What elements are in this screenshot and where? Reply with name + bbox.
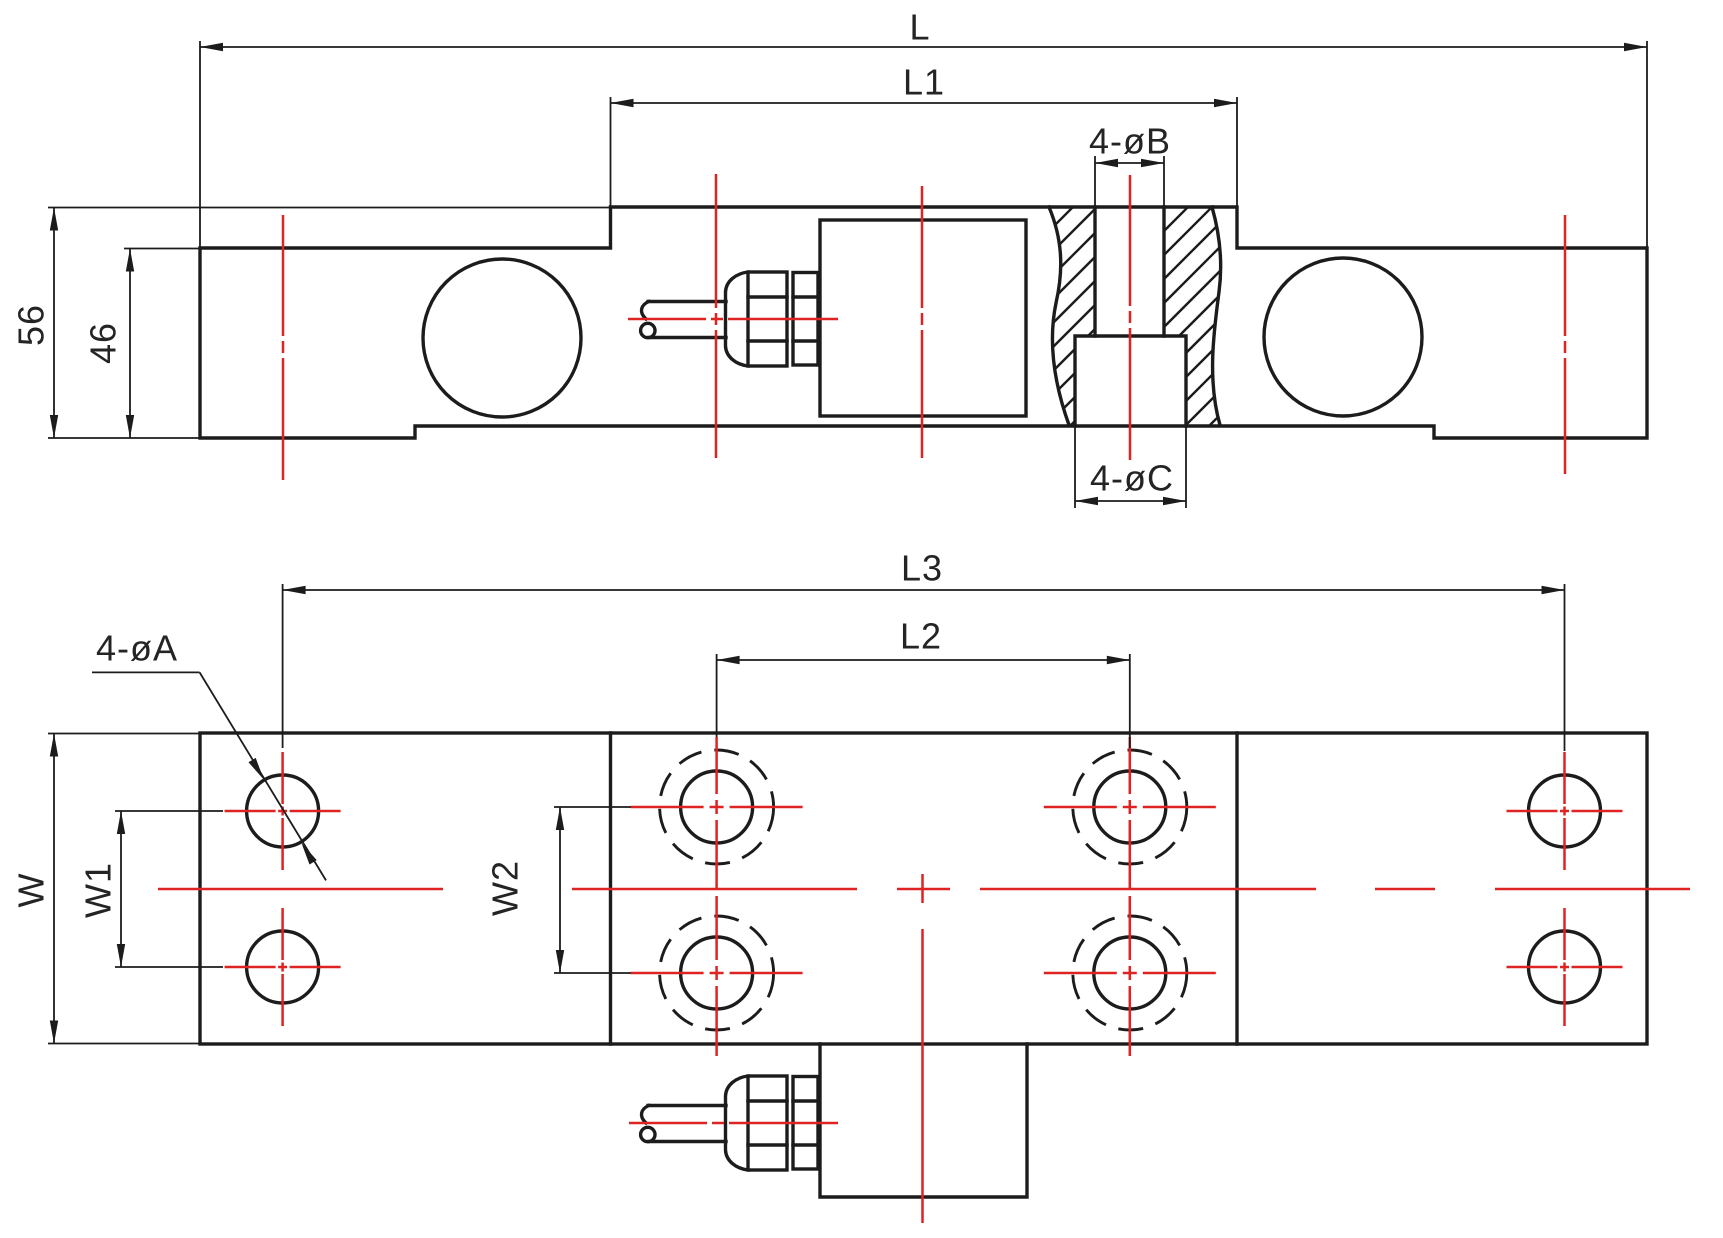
svg-text:L2: L2 <box>900 616 942 657</box>
svg-text:46: 46 <box>83 322 124 364</box>
svg-text:4-øC: 4-øC <box>1090 458 1174 499</box>
svg-text:4-øB: 4-øB <box>1089 121 1171 162</box>
svg-text:L: L <box>909 7 930 48</box>
svg-text:56: 56 <box>11 304 52 346</box>
svg-text:L3: L3 <box>901 548 943 589</box>
svg-text:L1: L1 <box>903 62 945 103</box>
svg-text:W: W <box>11 873 52 908</box>
svg-text:W2: W2 <box>485 860 526 916</box>
svg-text:W1: W1 <box>78 862 119 918</box>
svg-text:4-øA: 4-øA <box>96 628 178 669</box>
